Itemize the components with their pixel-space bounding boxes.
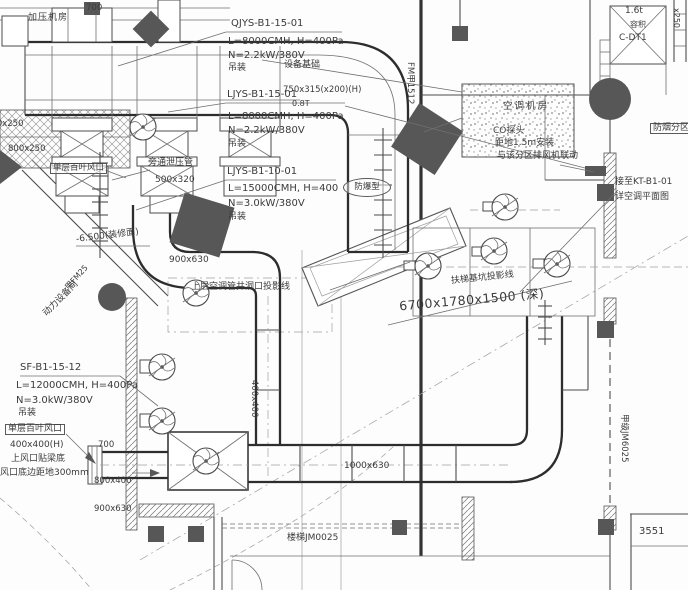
- overlay-fragment: 0.8T: [292, 100, 310, 108]
- equipment-mount-2: 吊装: [228, 140, 246, 149]
- equipment-airflow-1: L=8000CMH, H=400Pa: [228, 37, 344, 48]
- dimension-700-top: 700: [86, 4, 102, 13]
- duct-size-400x400: 400x400: [249, 380, 258, 417]
- equipment-tag-3: LJYS-B1-10-01: [227, 167, 297, 178]
- dimension-700-bottom: 700: [98, 441, 114, 450]
- equipment-base-note: 设备基础: [284, 61, 320, 70]
- equipment-airflow-2: L=8000CMH, H=400Pa: [228, 112, 344, 123]
- duct-size-800x400: 800x400: [94, 477, 131, 486]
- fire-door-tag-b: FM甲1512: [405, 62, 414, 104]
- ac-room-label: 空调机房: [503, 102, 549, 112]
- smoke-zone-label: 防烟分区: [650, 123, 688, 134]
- equipment-tag-1: QJYS-B1-15-01: [231, 19, 303, 30]
- equipment-mount-3: 吊装: [228, 213, 246, 222]
- equipment-tag-4: SF-B1-15-12: [20, 363, 81, 374]
- explosion-proof-badge: 防爆型: [343, 178, 391, 197]
- duct-size-overlay: 750x315(x200)(H): [283, 86, 361, 95]
- louver-note1: 上风口贴梁底: [11, 455, 65, 464]
- lift-capacity: 1.6t: [625, 7, 643, 16]
- equipment-power-3: N=3.0kW/380V: [228, 199, 305, 210]
- hvac-floor-plan: 700 加压机房 QJYS-B1-15-01 L=8000CMH, H=400P…: [0, 0, 688, 590]
- shaft-projection-label: 上层空调管井洞口投影线: [191, 283, 290, 292]
- room-label-top-left: 加压机房: [28, 14, 68, 23]
- equipment-mount-4: 吊装: [18, 409, 36, 418]
- equipment-airflow-4: L=12000CMH, H=400Pa: [16, 381, 138, 392]
- equipment-power-4: N=3.0kW/380V: [16, 396, 93, 407]
- bypass-duct-label: 旁通泄压管: [148, 159, 193, 168]
- duct-size-800x250: 800x250: [8, 145, 45, 154]
- equipment-power-2: N=2.2kW/380V: [228, 126, 305, 137]
- lift-volume: 容积: [630, 21, 646, 29]
- wall-opening-tag: 甲级JM6025: [619, 414, 628, 462]
- equipment-mount-1: 吊装: [228, 64, 246, 73]
- duct-size-900x630: 900x630: [169, 256, 209, 265]
- duct-size-1000x630: 1000x630: [344, 462, 389, 471]
- bypass-duct-size: 500x320: [155, 176, 195, 185]
- dimension-3551: 3551: [639, 527, 664, 538]
- stair-label: 楼梯JM0025: [287, 534, 338, 543]
- equipment-airflow-3: L=15000CMH, H=400: [228, 184, 338, 195]
- co-probe-label: CO探头: [493, 127, 524, 136]
- kt-connection-line1: 接至KT-B1-01: [615, 178, 672, 187]
- duct-size-x250: x250: [672, 8, 680, 28]
- duct-size-900x630-b: 900x630: [94, 505, 131, 514]
- louver-note2: 风口底边距地300mm: [0, 469, 89, 478]
- co-probe-note1: 距地1.5m安装: [495, 139, 554, 148]
- kt-connection-line2: 详空调平面图: [615, 193, 669, 202]
- co-probe-note2: 与该分区排风机联动: [497, 152, 578, 161]
- louver-label-lower: 单层百叶风口: [5, 424, 65, 435]
- louver-size-lower: 400x400(H): [10, 441, 63, 450]
- duct-size-partial: 800x250: [0, 120, 23, 129]
- escalator-symbol: [302, 208, 466, 306]
- lift-tag: C-DT1: [619, 34, 647, 43]
- louver-label-upper: 单层百叶风口: [50, 163, 107, 174]
